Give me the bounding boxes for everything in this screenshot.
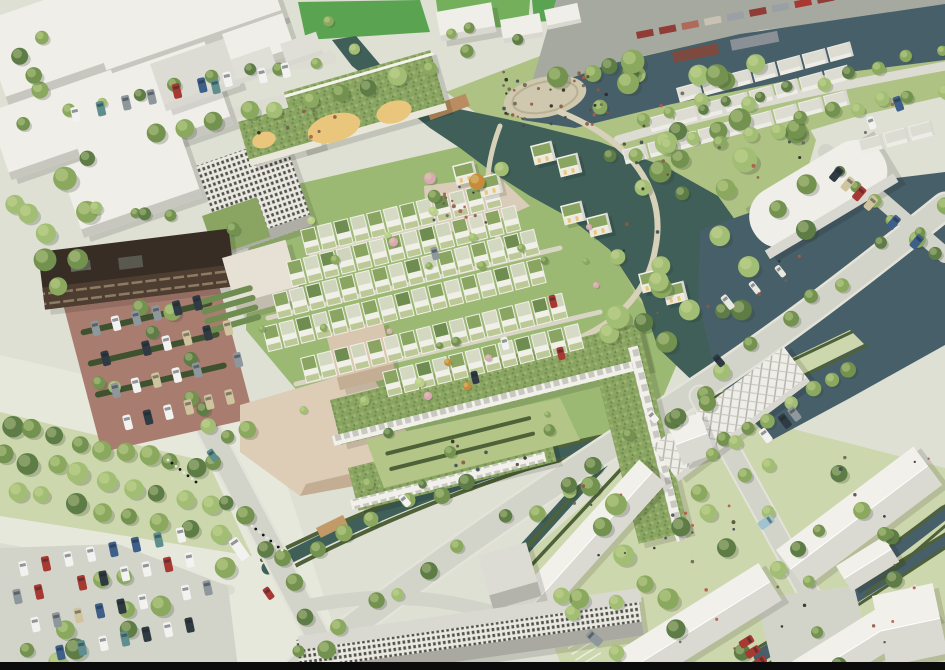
aerial-masterplan-rendering [0, 0, 945, 670]
masterplan-scene [0, 0, 945, 670]
frame-edge-layer [0, 662, 945, 670]
